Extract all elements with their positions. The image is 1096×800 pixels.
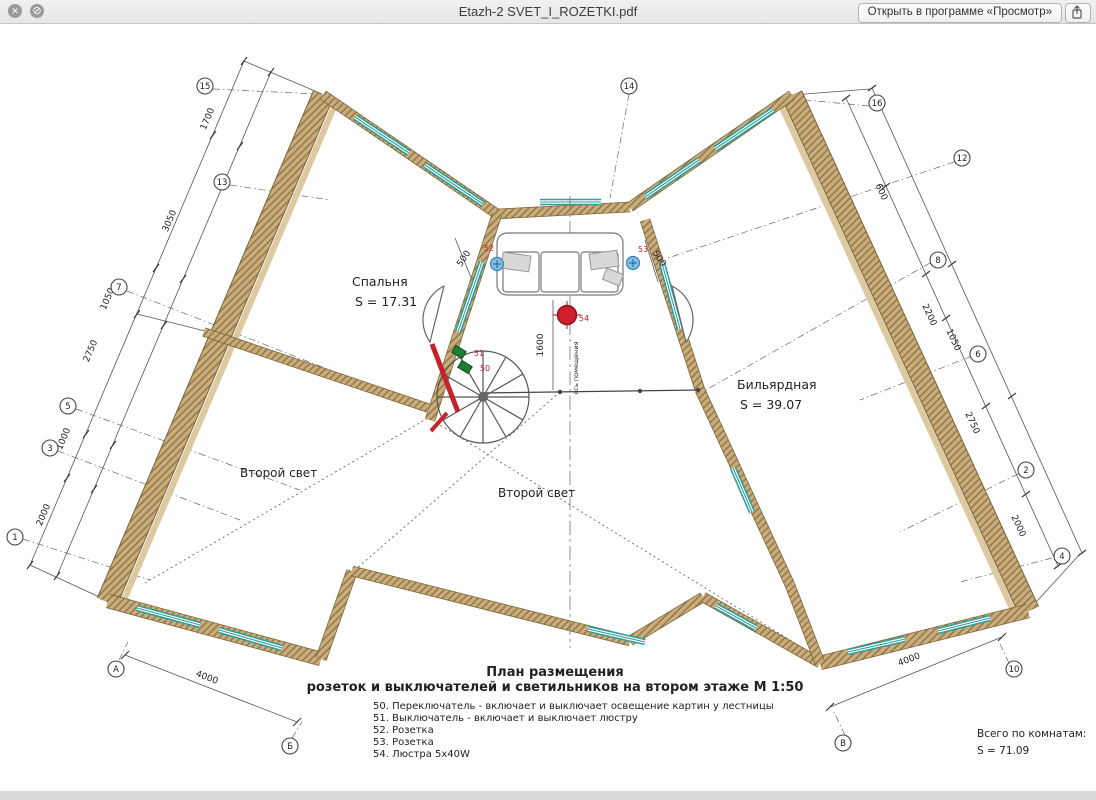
- sofa: [497, 233, 624, 295]
- room-billiard-name: Бильярдная: [737, 377, 817, 392]
- page-edge-strip: [0, 791, 1096, 800]
- walls: [107, 95, 1029, 663]
- bubble-16: 16: [872, 99, 883, 109]
- socket-53: [627, 257, 640, 270]
- bubble-8: 8: [935, 256, 940, 266]
- dim-left-2000: 2000: [35, 502, 53, 527]
- floor-plan-canvas: 51 50 52 53 54 1700 3050 1050 2750 1000 …: [0, 0, 1096, 800]
- legend-item-51: 51. Выключатель - включает и выключает л…: [373, 713, 638, 724]
- windows: [137, 110, 990, 652]
- room-billiard-area: S = 39.07: [740, 397, 802, 412]
- socket-52-label: 52: [484, 244, 494, 253]
- bubble-B: Б: [287, 742, 293, 752]
- dim-right-2200: 2200: [919, 303, 938, 328]
- zone-second-light-center: Второй свет: [498, 486, 575, 500]
- bubble-V: В: [840, 739, 846, 749]
- bubble-15: 15: [200, 82, 211, 92]
- chandelier-54-label: 54: [579, 314, 589, 323]
- caption-block: План размещения розеток и выключателей и…: [307, 665, 1087, 760]
- bubble-7: 7: [116, 283, 121, 293]
- legend-item-53: 53. Розетка: [373, 737, 434, 748]
- switch-50: [458, 360, 472, 373]
- room-bedroom-area: S = 17.31: [355, 294, 417, 309]
- dim-bottom-right-4000: 4000: [897, 651, 922, 669]
- switch-51-label: 51: [474, 349, 484, 358]
- plan-title-line2: розеток и выключателей и светильников на…: [307, 680, 804, 695]
- bubble-3: 3: [47, 444, 52, 454]
- dim-left-2750: 2750: [82, 338, 100, 363]
- quicklook-window: 51 50 52 53 54 1700 3050 1050 2750 1000 …: [0, 0, 1096, 800]
- dim-right-2750: 2750: [962, 411, 981, 436]
- bubble-10: 10: [1009, 665, 1020, 675]
- legend-item-52: 52. Розетка: [373, 725, 434, 736]
- dim-left-3050: 3050: [161, 208, 179, 233]
- totals-line1: Всего по комнатам:: [977, 728, 1086, 740]
- bubble-1: 1: [12, 533, 17, 543]
- dim-right-1050: 1050: [943, 328, 962, 353]
- dim-bottom-left-4000: 4000: [194, 669, 219, 687]
- bubble-5: 5: [65, 402, 70, 412]
- bubble-12: 12: [957, 154, 968, 164]
- title-bar: ✕ ⊘ Etazh-2 SVET_I_ROZETKI.pdf Открыть в…: [0, 0, 1096, 24]
- plan-title-line1: План размещения: [486, 665, 623, 680]
- legend-item-54: 54. Люстра 5x40W: [373, 749, 470, 760]
- door-left: [423, 286, 444, 342]
- dim-left-1700: 1700: [199, 106, 217, 131]
- bubble-2: 2: [1023, 466, 1028, 476]
- dim-right-2000: 2000: [1008, 514, 1027, 539]
- zone-second-light-left: Второй свет: [240, 466, 317, 480]
- bubble-A: А: [113, 665, 119, 675]
- bubble-14: 14: [624, 82, 635, 92]
- dim-1600: 1600: [536, 333, 546, 356]
- switch-50-label: 50: [480, 364, 490, 373]
- axis-label: ось помещения: [572, 341, 580, 394]
- bubble-13: 13: [217, 178, 228, 188]
- socket-53-label: 53: [638, 245, 648, 254]
- share-button[interactable]: [1065, 3, 1091, 23]
- dim-500-left: 500: [455, 249, 473, 269]
- bubble-6: 6: [975, 350, 980, 360]
- totals-line2: S = 71.09: [977, 745, 1029, 757]
- bubble-4: 4: [1059, 552, 1064, 562]
- open-in-preview-button[interactable]: Открыть в программе «Просмотр»: [858, 3, 1062, 23]
- grid-bubbles: 15 13 7 5 3 1 16 12 8 6 2 4 10 14 А Б В: [7, 78, 1070, 754]
- legend-item-50: 50. Переключатель - включает и выключает…: [373, 701, 774, 712]
- chandelier-54: [553, 301, 581, 329]
- socket-52: [491, 258, 504, 271]
- room-bedroom-name: Спальня: [352, 274, 408, 289]
- share-icon: [1066, 4, 1088, 20]
